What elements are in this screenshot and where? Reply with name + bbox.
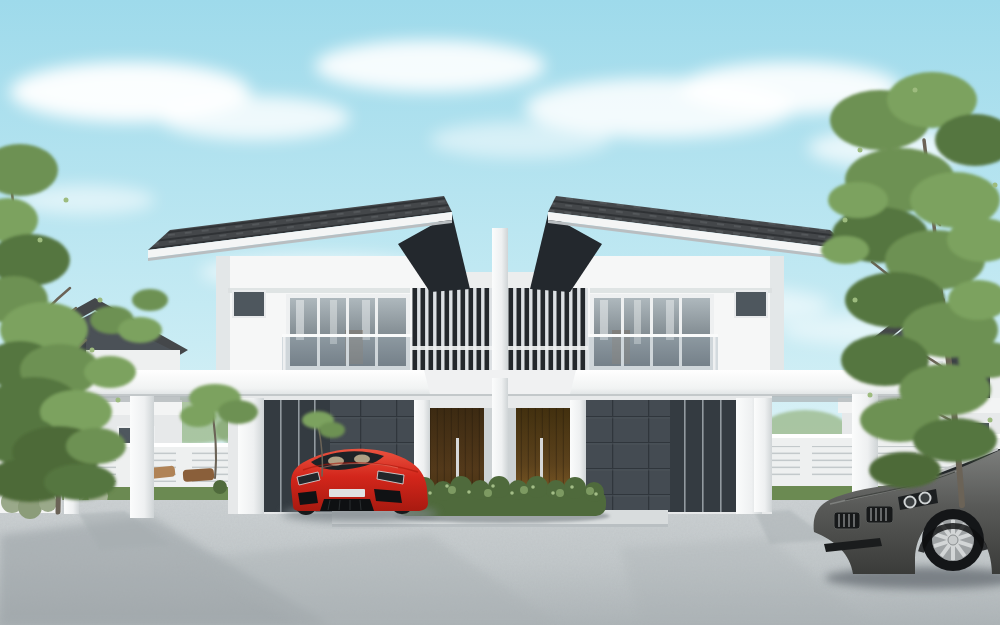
balcony-window-right	[586, 294, 718, 371]
small-window-right	[735, 291, 767, 317]
door-handle	[540, 438, 543, 480]
license-plate	[329, 489, 365, 497]
glass-balustrade	[282, 337, 414, 371]
louver-screen-right	[506, 288, 588, 376]
scene-image	[0, 0, 1000, 625]
louver-screen-left	[412, 288, 494, 376]
balustrade-rail	[586, 334, 718, 337]
carport-column	[754, 398, 772, 512]
scene-rendering	[0, 0, 1000, 625]
glass-balustrade	[586, 337, 718, 371]
balustrade-rail	[282, 334, 414, 337]
balcony-window-left	[282, 294, 414, 371]
front-wheel	[922, 509, 984, 571]
small-window-left	[233, 291, 265, 317]
party-wall-divider	[492, 228, 508, 378]
door-handle	[456, 438, 459, 480]
carport-column	[130, 396, 154, 518]
